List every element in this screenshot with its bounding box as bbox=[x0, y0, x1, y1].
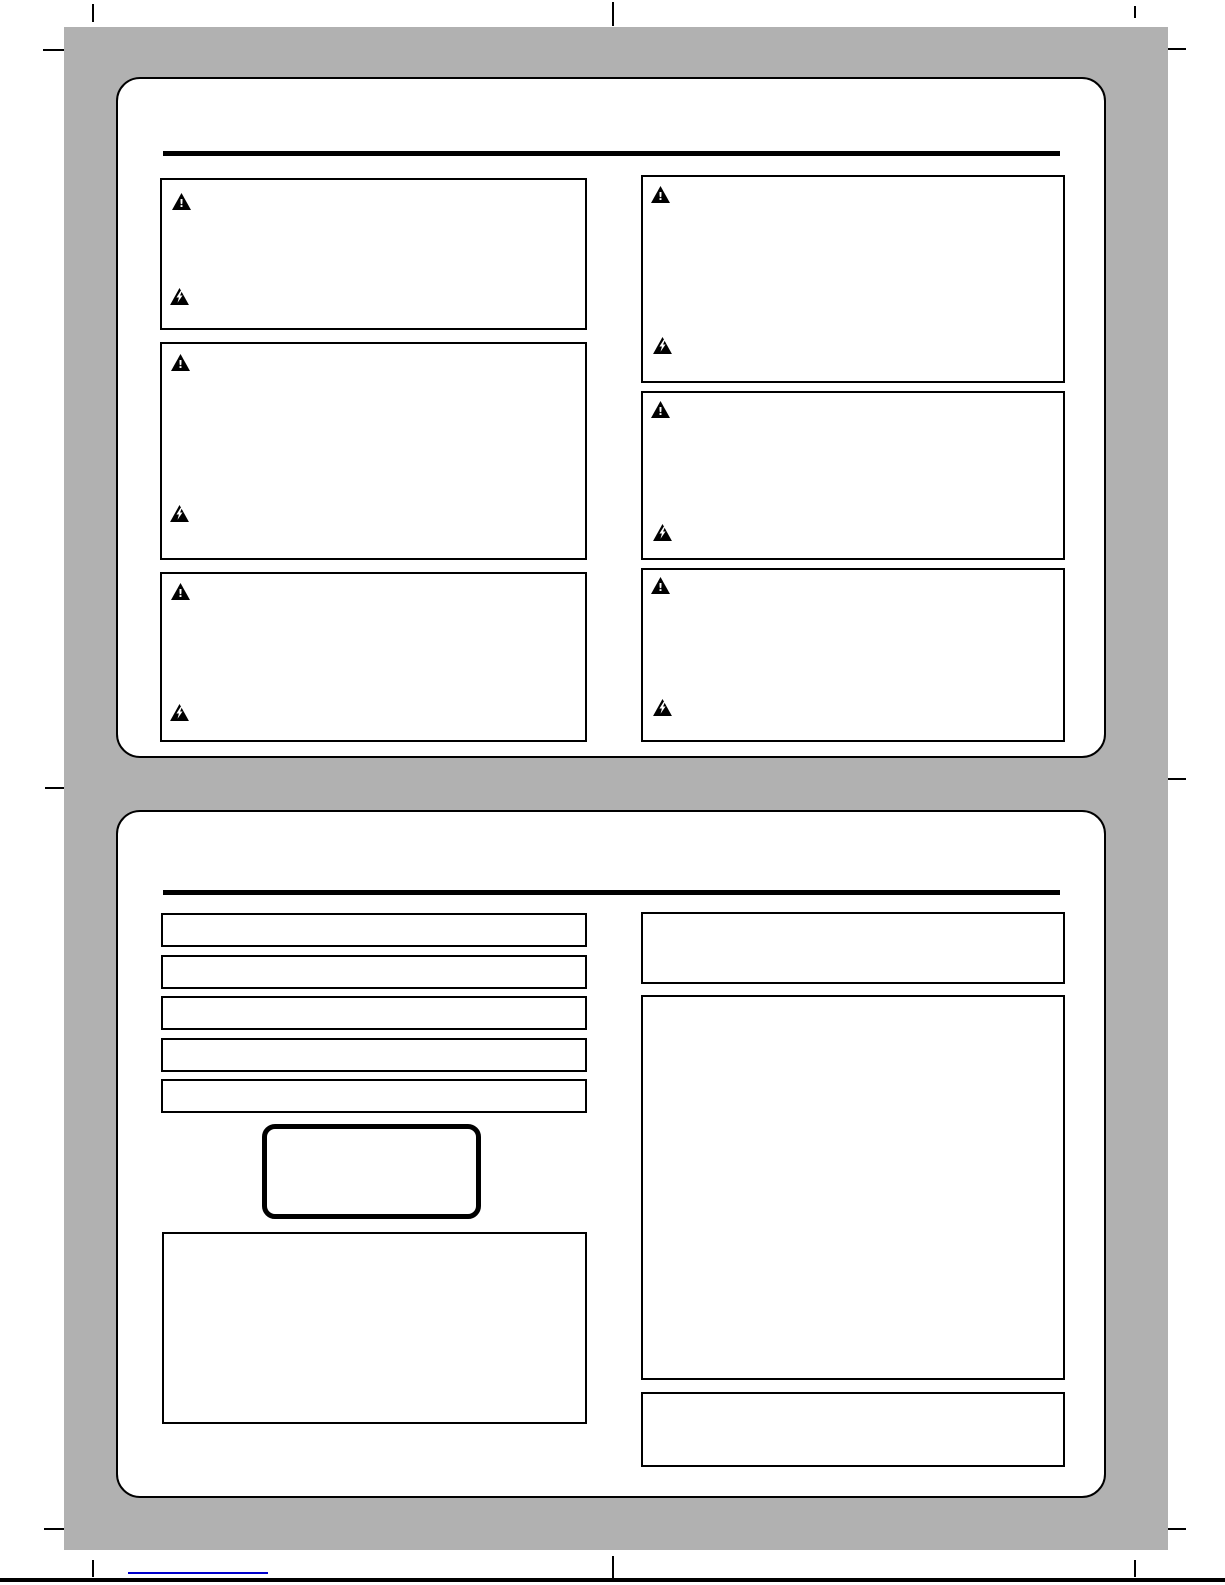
info-box-bottom bbox=[641, 1392, 1065, 1467]
electric-shock-icon bbox=[653, 524, 672, 541]
entry-row-3 bbox=[161, 996, 587, 1030]
info-box-top bbox=[641, 912, 1065, 984]
crop-mark-bottom-left bbox=[92, 1560, 94, 1577]
entry-row-2 bbox=[161, 955, 587, 989]
entry-row-4 bbox=[161, 1038, 587, 1072]
warning-box-2: ! bbox=[160, 342, 587, 560]
crop-mark-bottom-right bbox=[1134, 1560, 1136, 1577]
crop-mark-right-middle bbox=[1167, 778, 1186, 780]
warning-glyph: ! bbox=[658, 190, 663, 203]
crop-mark-right-top bbox=[1167, 48, 1186, 50]
electric-shock-icon bbox=[653, 337, 672, 354]
warning-icon: ! bbox=[651, 401, 670, 418]
top-section-rule bbox=[163, 151, 1060, 156]
warning-glyph: ! bbox=[178, 587, 183, 600]
warning-glyph: ! bbox=[658, 581, 663, 594]
crop-mark-right-bottom bbox=[1167, 1528, 1186, 1530]
electric-shock-icon bbox=[170, 704, 189, 721]
electric-shock-icon bbox=[170, 288, 189, 305]
crop-mark-left-top bbox=[43, 49, 64, 51]
info-box-main bbox=[641, 995, 1065, 1380]
entry-row-5 bbox=[161, 1079, 587, 1113]
electric-shock-icon bbox=[653, 699, 672, 716]
warning-glyph: ! bbox=[658, 405, 663, 418]
bottom-section-rule bbox=[163, 890, 1060, 895]
warning-icon: ! bbox=[171, 583, 190, 600]
warning-box-1: ! bbox=[160, 178, 587, 330]
warning-icon: ! bbox=[172, 193, 191, 210]
warning-box-3: ! bbox=[160, 572, 587, 742]
crop-mark-top-right bbox=[1134, 6, 1136, 18]
note-box bbox=[162, 1232, 587, 1424]
warning-icon: ! bbox=[171, 354, 190, 371]
electric-shock-icon bbox=[170, 505, 189, 522]
scanned-page: ! ! ! ! ! ! bbox=[0, 0, 1225, 1585]
warning-glyph: ! bbox=[178, 358, 183, 371]
crop-mark-top-center bbox=[612, 2, 614, 26]
page-bottom-edge-line bbox=[0, 1578, 1225, 1582]
warning-box-6: ! bbox=[641, 568, 1065, 742]
footer-link-underline[interactable] bbox=[128, 1572, 268, 1574]
model-badge-box bbox=[262, 1124, 481, 1219]
warning-glyph: ! bbox=[179, 197, 184, 210]
entry-row-1 bbox=[161, 913, 587, 947]
warning-icon: ! bbox=[651, 186, 670, 203]
crop-mark-top-left bbox=[92, 4, 94, 22]
warning-icon: ! bbox=[651, 577, 670, 594]
warning-box-4: ! bbox=[641, 175, 1065, 383]
crop-mark-left-bottom bbox=[44, 1528, 64, 1530]
crop-mark-left-middle bbox=[45, 787, 64, 789]
warning-box-5: ! bbox=[641, 391, 1065, 560]
